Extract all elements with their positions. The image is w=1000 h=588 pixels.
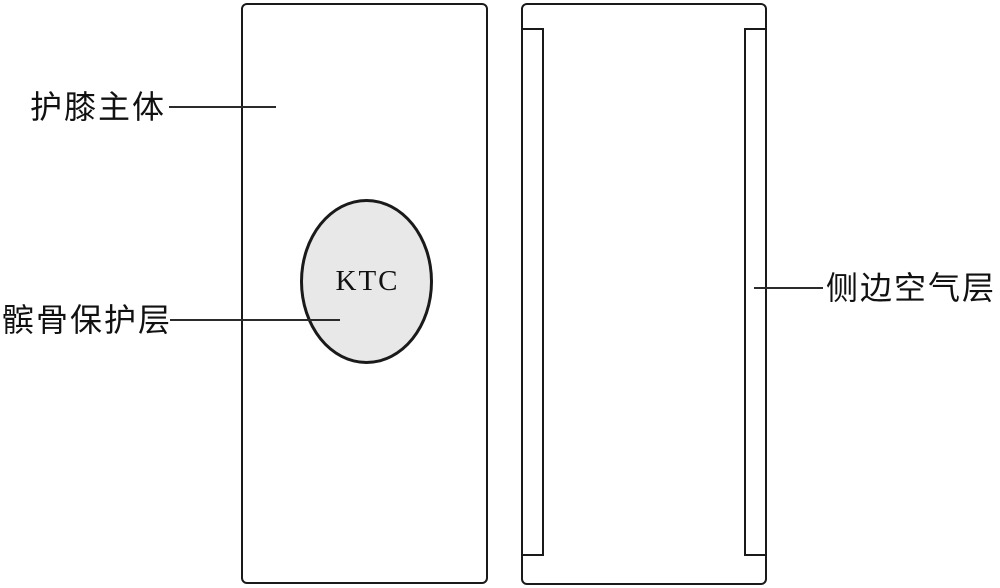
- kneepad-body-label: 护膝主体: [30, 90, 166, 124]
- leader-line-kneepad-body: [169, 106, 276, 108]
- patella-protection-ellipse: KTC: [300, 199, 433, 364]
- side-air-layer-strip-left: [521, 28, 544, 556]
- side-air-layer-label: 侧边空气层: [826, 271, 996, 305]
- patella-layer-label: 髌骨保护层: [2, 303, 172, 337]
- kneepad-diagram: KTC 护膝主体 髌骨保护层 侧边空气层: [0, 0, 1000, 588]
- leader-line-side-air-layer: [754, 287, 823, 289]
- side-view-outline: [521, 3, 767, 585]
- ktc-label: KTC: [334, 265, 400, 298]
- leader-line-patella-layer: [170, 319, 340, 321]
- side-air-layer-strip-right: [744, 28, 767, 556]
